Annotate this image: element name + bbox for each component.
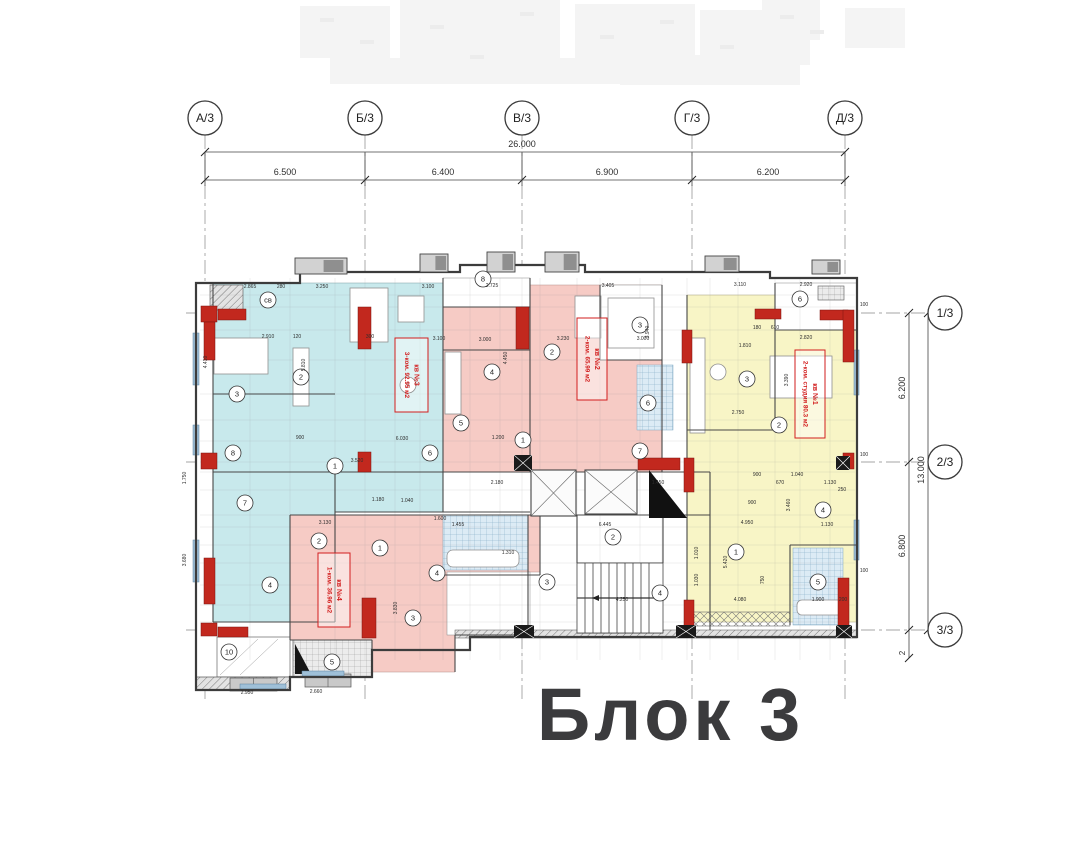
- room-circle: 5: [810, 574, 826, 590]
- apartment-label-apt-1: кв №12-ком. студия 80.3 м2: [795, 350, 825, 438]
- dim-text: кв №2: [593, 348, 601, 370]
- room-circle: 4: [484, 364, 500, 380]
- room-circle: 8: [225, 445, 241, 461]
- dim-text: 2-ком. студия 80.3 м2: [802, 361, 809, 428]
- axis-bubble-Б/3: Б/3: [348, 101, 382, 135]
- dim-text: 1.455: [452, 522, 465, 528]
- dim-text: 4.080: [734, 597, 747, 603]
- dim-text: 6.200: [897, 377, 907, 400]
- room-circle: 2: [311, 533, 327, 549]
- dim-text: 1.030: [694, 574, 700, 587]
- column-red: [358, 307, 371, 349]
- dim-text: 3: [235, 390, 239, 399]
- room-circle: 3: [229, 386, 245, 402]
- dim-text: 1: [378, 544, 382, 553]
- dim-text: 4: [435, 569, 439, 578]
- dim-text: 1.600: [434, 516, 447, 522]
- dim-text: 1.130: [824, 480, 837, 486]
- dim-text: 1/3: [937, 306, 954, 320]
- dim-text: 1.450: [652, 480, 665, 486]
- dim-text: св: [264, 296, 272, 305]
- column-red: [843, 310, 854, 362]
- furniture-item: [214, 338, 268, 374]
- dim-text: 6.200: [757, 167, 780, 177]
- room-circle: 3: [539, 574, 555, 590]
- floor-plan-page: 26.0006.5006.4006.9006.2006.2006.80013.0…: [0, 0, 1079, 842]
- dim-text: 120: [293, 334, 302, 340]
- dim-text: 3.250: [316, 284, 329, 290]
- room-circle: 5: [324, 654, 340, 670]
- dim-text: 6: [646, 399, 650, 408]
- dim-text: 3: [545, 578, 549, 587]
- dim-text: 750: [760, 576, 766, 585]
- dim-text: 2: [317, 537, 321, 546]
- room-circle: 4: [262, 577, 278, 593]
- column-red: [204, 322, 215, 360]
- column-red: [755, 309, 781, 319]
- dim-text: 3.940: [645, 326, 651, 339]
- dim-text: 4.950: [741, 520, 754, 526]
- dim-text: А/3: [196, 111, 214, 125]
- dim-text: 300: [366, 334, 375, 340]
- column-red: [201, 623, 217, 636]
- dim-text: 3: [638, 321, 642, 330]
- dim-text: 1: [333, 462, 337, 471]
- dim-text: 200: [839, 597, 848, 603]
- room-circle: 3: [739, 371, 755, 387]
- dim-text: 5: [816, 578, 820, 587]
- dim-text: Д/3: [836, 111, 854, 125]
- dim-text: 1.310: [502, 550, 515, 556]
- dim-text: 2.950: [241, 690, 254, 696]
- column-red: [684, 600, 694, 626]
- dim-text: 6: [428, 449, 432, 458]
- room-circle: 10: [221, 644, 237, 660]
- dim-text: 900: [296, 435, 305, 441]
- dim-text: 250: [838, 487, 847, 493]
- dim-text: 4.450: [503, 352, 509, 365]
- dim-text: 2-ком. 65.99 м2: [584, 336, 591, 383]
- dim-text: 3.680: [182, 554, 188, 567]
- dim-text: 3: [745, 375, 749, 384]
- dim-text: 7: [243, 499, 247, 508]
- room-circle: 6: [422, 445, 438, 461]
- axis-bubble-Г/3: Г/3: [675, 101, 709, 135]
- dim-text: 7: [638, 447, 642, 456]
- dim-text: 1.010: [694, 547, 700, 560]
- axis-bubble-3/3: 3/3: [928, 613, 962, 647]
- room-circle: 1: [515, 432, 531, 448]
- dim-text: 3.000: [479, 337, 492, 343]
- dim-text: 5: [330, 658, 334, 667]
- dim-text: 5.420: [723, 556, 729, 569]
- axis-bubble-Д/3: Д/3: [828, 101, 862, 135]
- dim-text: 1.750: [182, 472, 188, 485]
- room-circle: 6: [792, 291, 808, 307]
- room-circle: 7: [632, 443, 648, 459]
- dim-text: 4: [490, 368, 494, 377]
- room-circle: 5: [453, 415, 469, 431]
- dim-text: 2: [898, 650, 907, 655]
- dim-text: 2.920: [800, 282, 813, 288]
- dim-text: 280: [277, 284, 286, 290]
- dim-text: 900: [753, 472, 762, 478]
- dim-text: 2.660: [310, 689, 323, 695]
- room-circle: 2: [771, 417, 787, 433]
- dim-text: 3-ком. 92.95 м2: [403, 352, 410, 399]
- sink: [710, 364, 726, 380]
- dim-text: 8: [481, 275, 485, 284]
- dim-text: 3.100: [433, 336, 446, 342]
- dim-text: 2: [777, 421, 781, 430]
- column-red: [682, 330, 692, 363]
- column-red: [516, 307, 529, 349]
- dim-text: 3: [411, 614, 415, 623]
- room-circle: 4: [429, 565, 445, 581]
- dim-text: 1.040: [791, 472, 804, 478]
- column-red: [362, 598, 376, 638]
- room-circle: 1: [728, 544, 744, 560]
- dim-text: В/3: [513, 111, 531, 125]
- dim-text: 1-ком. 36.96 м2: [326, 567, 333, 614]
- column-red: [638, 458, 680, 470]
- furniture-item: [398, 296, 424, 322]
- dim-text: 6.445: [599, 522, 612, 528]
- kitchen-tiles: [818, 286, 844, 300]
- dim-text: 2.820: [800, 335, 813, 341]
- dim-text: 3.390: [784, 374, 790, 387]
- dim-text: 6.030: [396, 436, 409, 442]
- furniture-item: [445, 352, 461, 414]
- dim-text: кв №3: [413, 364, 421, 386]
- dim-text: 6.400: [432, 167, 455, 177]
- dim-text: 1.200: [492, 435, 505, 441]
- column-red: [684, 458, 694, 492]
- dim-text: 2: [550, 348, 554, 357]
- column-red: [204, 558, 215, 604]
- dim-text: 4: [821, 506, 825, 515]
- window: [240, 684, 286, 689]
- axis-bubble-1/3: 1/3: [928, 296, 962, 330]
- column-red: [201, 306, 217, 322]
- dim-text: 2.865: [244, 284, 257, 290]
- dim-text: 2.910: [262, 334, 275, 340]
- dim-text: 10: [225, 648, 233, 657]
- apartment-label-apt-4: кв №41-ком. 36.96 м2: [318, 553, 350, 627]
- dim-text: 3.830: [393, 602, 399, 615]
- dim-text: кв №4: [335, 579, 343, 601]
- dim-text: 4: [268, 581, 272, 590]
- room-circle: 4: [652, 585, 668, 601]
- block-title: Блок 3: [537, 678, 804, 752]
- room-circle: 1: [327, 458, 343, 474]
- dim-text: кв №1: [811, 383, 819, 405]
- dim-text: 3.130: [319, 520, 332, 526]
- dim-text: 5: [459, 419, 463, 428]
- dim-text: 100: [860, 302, 869, 308]
- dim-text: 4.250: [616, 597, 629, 603]
- dim-text: 1: [521, 436, 525, 445]
- dim-text: 100: [860, 568, 869, 574]
- dim-text: 3.110: [734, 282, 746, 288]
- dim-text: 1.810: [739, 343, 752, 349]
- room-circle: 7: [237, 495, 253, 511]
- dim-text: 6: [798, 295, 802, 304]
- axis-bubble-2/3: 2/3: [928, 445, 962, 479]
- apartment-label-apt-2: кв №22-ком. 65.99 м2: [577, 318, 607, 400]
- axis-bubble-А/3: А/3: [188, 101, 222, 135]
- room-circle: 2: [605, 529, 621, 545]
- dim-text: 2.725: [486, 283, 499, 289]
- dim-text: 3.230: [557, 336, 570, 342]
- axis-bubble-В/3: В/3: [505, 101, 539, 135]
- dim-text: 2.750: [732, 410, 745, 416]
- dim-text: 2: [299, 373, 303, 382]
- dim-text: 100: [860, 452, 869, 458]
- dim-text: 8: [231, 449, 235, 458]
- room-circle: 2: [544, 344, 560, 360]
- dim-text: 2/3: [937, 455, 954, 469]
- dim-text: Б/3: [356, 111, 374, 125]
- dim-text: 13.000: [916, 456, 926, 484]
- dim-text: 3.100: [422, 284, 435, 290]
- column-red: [218, 627, 248, 637]
- dim-text: 26.000: [508, 139, 536, 149]
- column-red: [201, 453, 217, 469]
- dim-text: 6.900: [596, 167, 619, 177]
- dim-text: 1.130: [821, 522, 834, 528]
- dim-text: 3.520: [351, 458, 364, 464]
- room-circle: 4: [815, 502, 831, 518]
- dim-text: 1.180: [372, 497, 385, 503]
- dim-text: 3.460: [786, 499, 792, 512]
- dim-text: 1.040: [401, 498, 414, 504]
- dim-text: 6.800: [897, 535, 907, 558]
- apartment-label-apt-3: кв №33-ком. 92.95 м2: [395, 338, 428, 412]
- dim-text: 1.900: [812, 597, 825, 603]
- dim-text: 610: [771, 325, 780, 331]
- dim-text: 180: [753, 325, 762, 331]
- room-circle: 1: [372, 540, 388, 556]
- dim-text: 6.500: [274, 167, 297, 177]
- room-circle: 6: [640, 395, 656, 411]
- ghost-drawing-fragment: [300, 0, 905, 85]
- column-red: [218, 309, 246, 320]
- vent-blocks: [295, 252, 840, 274]
- dim-text: 2: [611, 533, 615, 542]
- room-circle: 3: [405, 610, 421, 626]
- dim-text: 900: [748, 500, 757, 506]
- dim-text: 3/3: [937, 623, 954, 637]
- dim-text: 1: [734, 548, 738, 557]
- dim-text: 4: [658, 589, 662, 598]
- dim-text: 2.180: [491, 480, 504, 486]
- dim-text: 670: [776, 480, 785, 486]
- dim-text: 3.405: [602, 283, 615, 289]
- dim-text: Г/3: [684, 111, 701, 125]
- dim-text: 4.410: [203, 356, 209, 369]
- dim-text: 5.810: [301, 359, 307, 372]
- room-circle: св: [260, 292, 276, 308]
- window: [302, 671, 344, 676]
